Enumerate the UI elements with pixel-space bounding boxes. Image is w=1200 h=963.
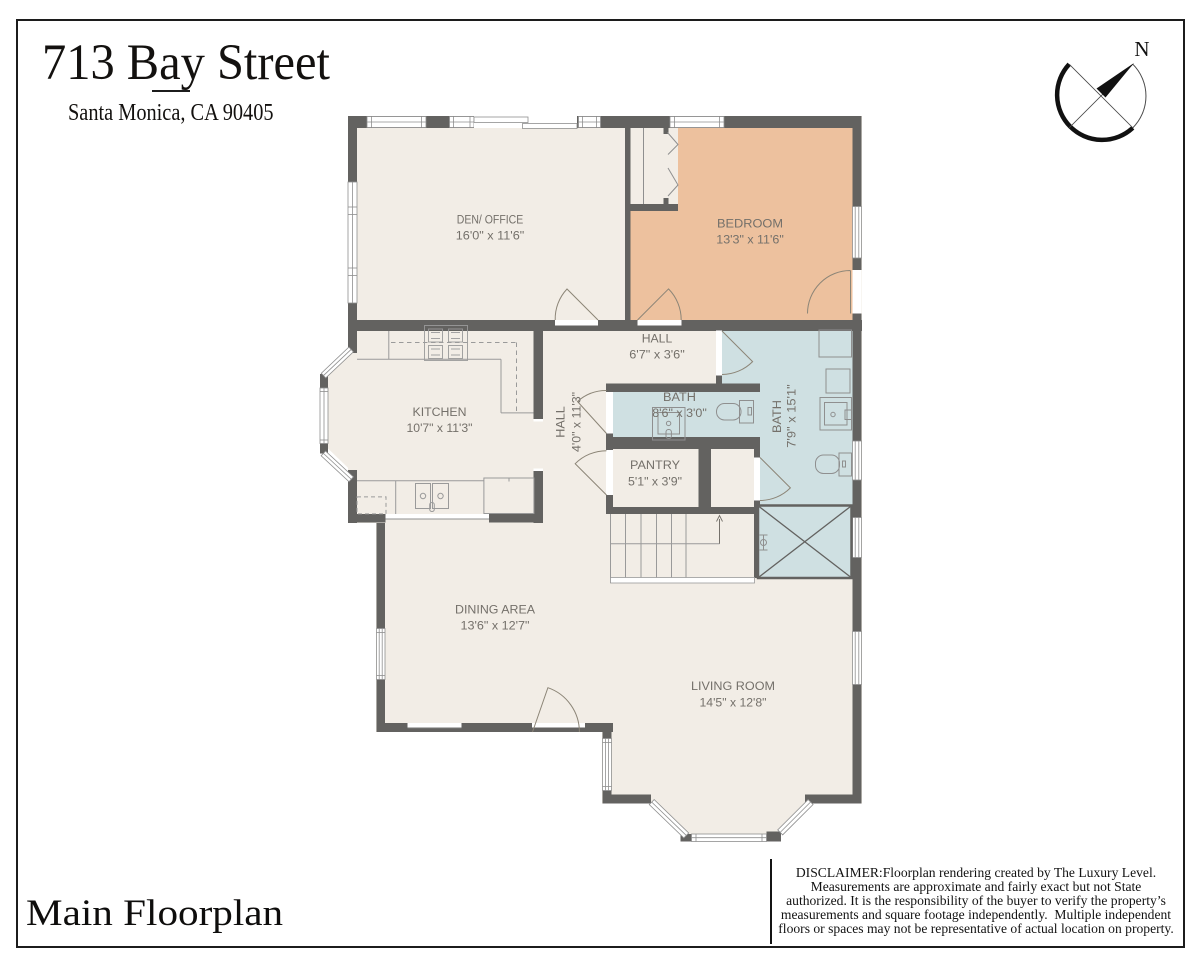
svg-text:10'7" x 11'3": 10'7" x 11'3"	[407, 421, 473, 435]
svg-text:HALL: HALL	[554, 406, 568, 438]
svg-text:13'3" x 11'6": 13'3" x 11'6"	[716, 233, 784, 247]
svg-text:HALL: HALL	[642, 332, 673, 346]
svg-text:5'1" x 3'9": 5'1" x 3'9"	[628, 475, 682, 489]
svg-text:BATH: BATH	[770, 400, 784, 433]
svg-text:16'0" x 11'6": 16'0" x 11'6"	[456, 229, 525, 243]
svg-text:6'7" x 3'6": 6'7" x 3'6"	[629, 348, 685, 362]
svg-text:8'6" x 3'0": 8'6" x 3'0"	[652, 406, 707, 420]
svg-text:N: N	[1134, 37, 1149, 61]
svg-text:KITCHEN: KITCHEN	[413, 405, 467, 419]
svg-text:LIVING ROOM: LIVING ROOM	[691, 679, 775, 693]
svg-text:PANTRY: PANTRY	[630, 458, 680, 472]
svg-text:14'5" x 12'8": 14'5" x 12'8"	[700, 696, 767, 710]
svg-text:DEN/ OFFICE: DEN/ OFFICE	[457, 213, 524, 227]
svg-text:BATH: BATH	[663, 390, 696, 404]
svg-text:4'0" x 11'3": 4'0" x 11'3"	[570, 392, 584, 452]
svg-text:13'6" x 12'7": 13'6" x 12'7"	[461, 619, 530, 633]
svg-text:BEDROOM: BEDROOM	[717, 217, 783, 231]
svg-text:DINING AREA: DINING AREA	[455, 603, 536, 617]
svg-text:7'9" x 15'1": 7'9" x 15'1"	[785, 384, 799, 448]
